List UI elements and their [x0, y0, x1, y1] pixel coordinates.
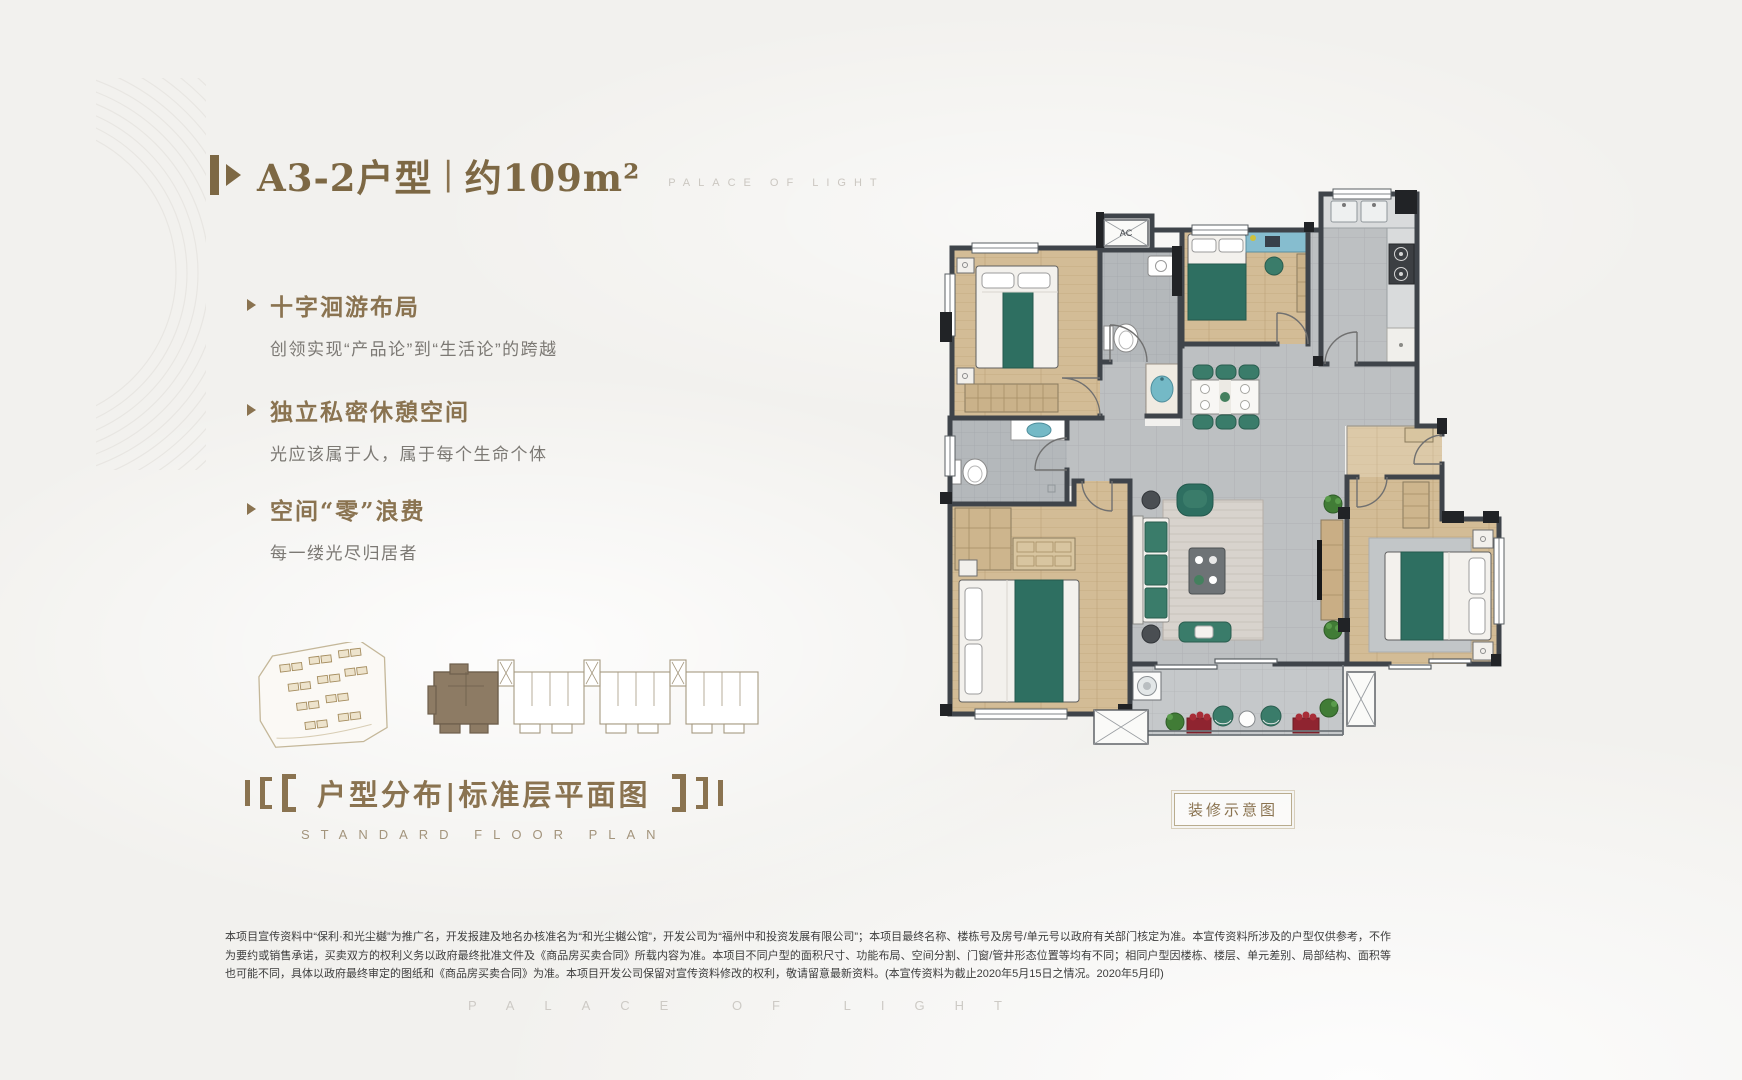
page-title: A3-2户型 | 约109m² — [257, 148, 640, 202]
feature-item: 独立私密休憩空间 光应该属于人，属于每个生命个体 — [247, 393, 548, 465]
ac-label: AC — [1120, 228, 1133, 238]
decoration-note-label: 装修示意图 — [1174, 793, 1292, 826]
floor-strip-thumbnail — [426, 646, 770, 746]
bullet-triangle-icon — [247, 503, 256, 515]
feature-title-row: 独立私密休憩空间 — [247, 393, 548, 427]
bracket-decoration-icon — [245, 780, 250, 806]
bullet-triangle-icon — [247, 404, 256, 416]
floor-plan: AC — [845, 186, 1505, 848]
feature-desc: 创领实现“产品论”到“生活论”的跨越 — [270, 335, 558, 360]
disclaimer-text: 本项目宣传资料中“保利·和光尘樾”为推广名，开发报建及地名办核准名为“和光尘樾公… — [225, 928, 1391, 984]
wash-basin-nook — [1146, 364, 1179, 414]
dining-set — [1191, 365, 1259, 429]
plant-icon — [1320, 699, 1338, 717]
unit-name: A3-2户型 — [257, 148, 433, 202]
feature-title-row: 空间“零”浪费 — [247, 492, 425, 526]
bracket-decoration-icon — [672, 774, 686, 812]
heading-row: 户型分布|标准层平面图 — [240, 772, 728, 814]
bracket-decoration-icon — [260, 777, 272, 809]
fingerprint-arcs-decoration — [96, 78, 206, 470]
feature-item: 空间“零”浪费 每一缕光尽归居者 — [247, 492, 425, 564]
feature-item: 十字洄游布局 创领实现“产品论”到“生活论”的跨越 — [247, 288, 558, 360]
feature-title: 空间“零”浪费 — [270, 492, 425, 526]
bracket-decoration-icon — [696, 777, 708, 809]
plant-icon — [1166, 713, 1184, 731]
heading-en: STANDARD FLOOR PLAN — [301, 827, 667, 842]
flower-planter-icon — [1293, 712, 1319, 734]
heading-cn: 户型分布|标准层平面图 — [317, 772, 651, 814]
title-bar-icon — [210, 155, 219, 195]
title-block: A3-2户型 | 约109m² PALACE OF LIGHT — [210, 148, 885, 202]
feature-desc: 每一缕光尽归居者 — [270, 539, 425, 564]
bullet-triangle-icon — [247, 299, 256, 311]
title-divider: | — [443, 154, 455, 193]
feature-desc: 光应该属于人，属于每个生命个体 — [270, 440, 548, 465]
feature-title: 独立私密休憩空间 — [270, 393, 470, 427]
site-plan-thumbnail — [248, 642, 400, 754]
feature-title: 十字洄游布局 — [270, 288, 420, 322]
title-triangle-icon — [226, 164, 241, 186]
bracket-decoration-icon — [718, 780, 723, 806]
flower-planter-icon — [1187, 712, 1211, 734]
entry-corridor — [1405, 428, 1433, 442]
section-heading: 户型分布|标准层平面图 STANDARD FLOOR PLAN — [240, 772, 728, 842]
unit-area: 约109m² — [465, 148, 641, 202]
brochure-page: A3-2户型 | 约109m² PALACE OF LIGHT 十字洄游布局 创… — [0, 0, 1742, 1080]
bracket-decoration-icon — [282, 774, 296, 812]
watermark-text: PALACE OF LIGHT — [468, 998, 1032, 1013]
feature-title-row: 十字洄游布局 — [247, 288, 558, 322]
